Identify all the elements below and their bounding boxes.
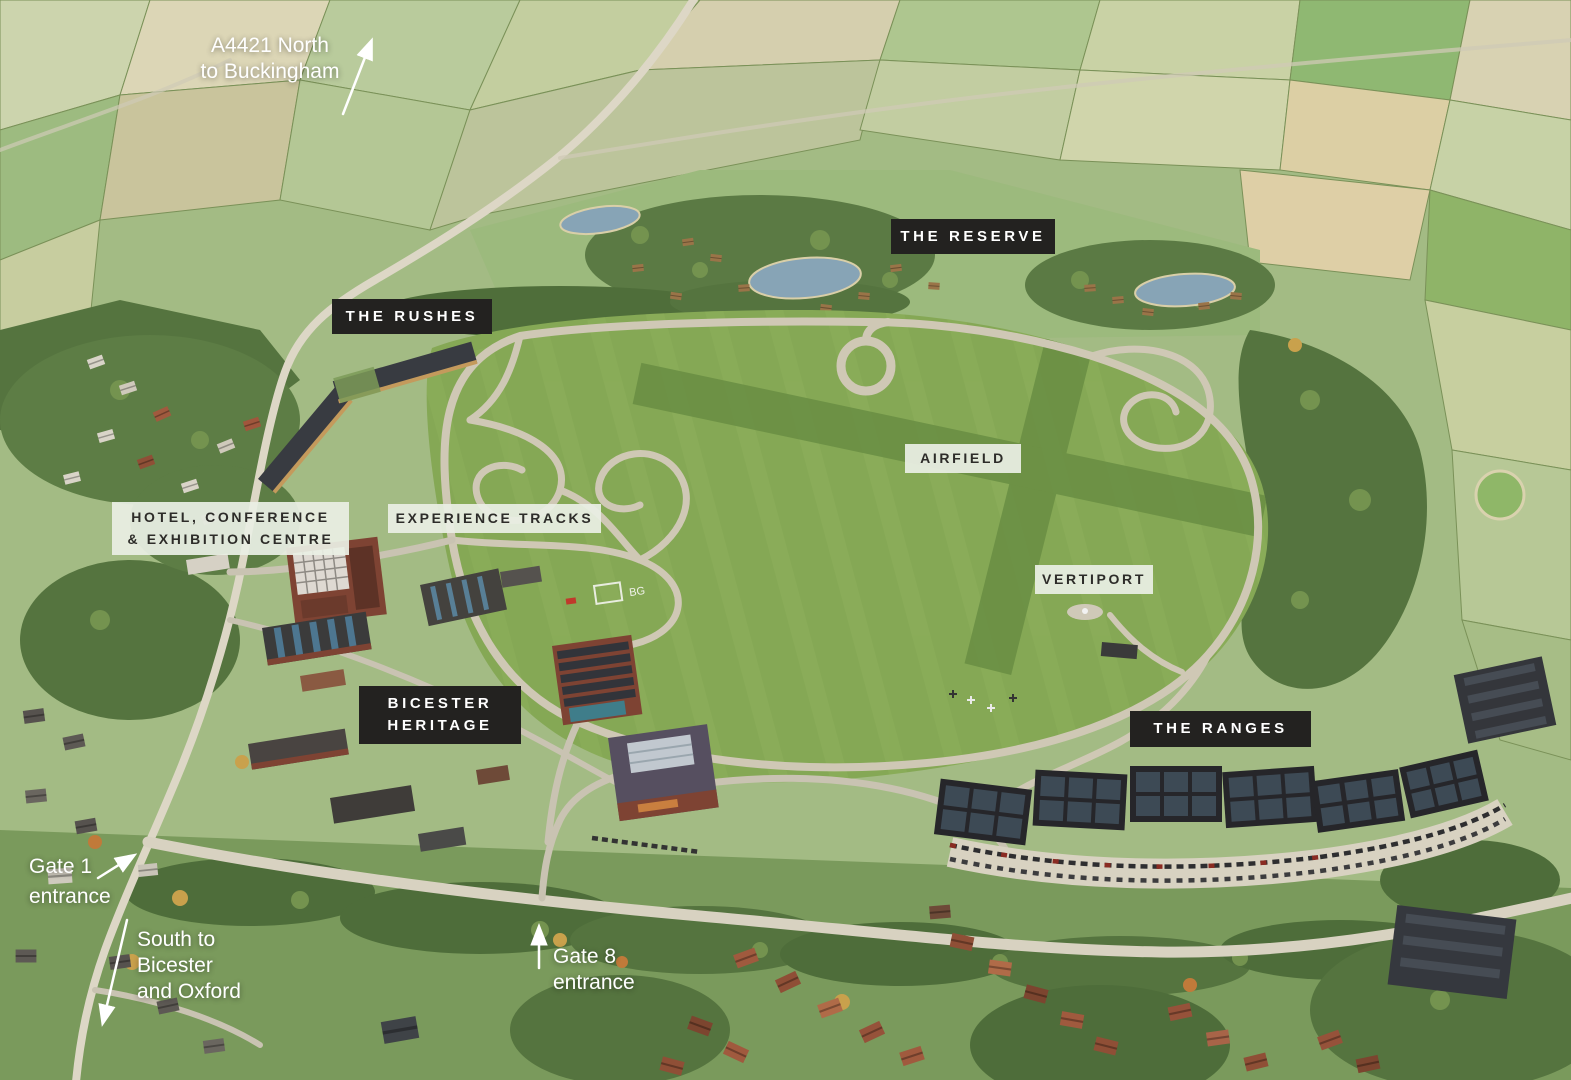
golf-green [1476,471,1524,519]
label-airfield: AIRFIELD [905,444,1021,473]
label-a4421-north: A4421 North to Buckingham [168,33,372,85]
solar-roof-building [608,724,719,821]
label-experience-tracks: EXPERIENCE TRACKS [388,504,601,533]
label-gate-1-entrance: Gate 1 entrance [29,852,111,912]
label-the-rushes: THE RUSHES [332,299,492,334]
label-hotel-conference-exhibition-centre: HOTEL, CONFERENCE & EXHIBITION CENTRE [112,502,349,555]
label-gate-8-entrance: Gate 8 entrance [553,944,635,996]
label-south-to-bicester: South to Bicester and Oxford [137,927,241,1005]
label-vertiport: VERTIPORT [1035,565,1153,594]
label-the-ranges: THE RANGES [1130,711,1311,747]
helipad-code-text: BG [629,585,646,599]
label-bicester-heritage: BICESTER HERITAGE [359,686,521,744]
label-the-reserve: THE RESERVE [891,219,1055,254]
site-map: BG [0,0,1571,1080]
